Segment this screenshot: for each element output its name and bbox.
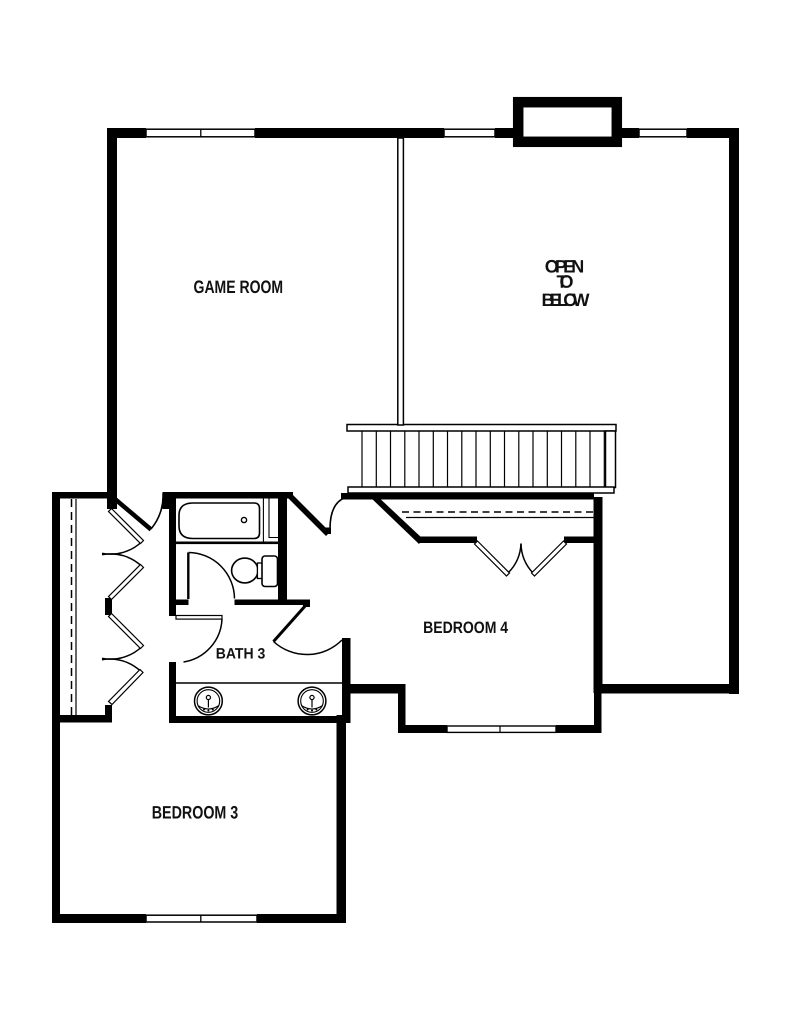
svg-text:GAME ROOM: GAME ROOM (194, 277, 284, 297)
svg-text:BEDROOM 3: BEDROOM 3 (152, 802, 239, 822)
svg-text:BEDROOM 4: BEDROOM 4 (423, 619, 509, 637)
svg-text:TO: TO (556, 272, 573, 292)
svg-text:BATH 3: BATH 3 (216, 645, 266, 662)
svg-text:BELOW: BELOW (541, 290, 589, 310)
